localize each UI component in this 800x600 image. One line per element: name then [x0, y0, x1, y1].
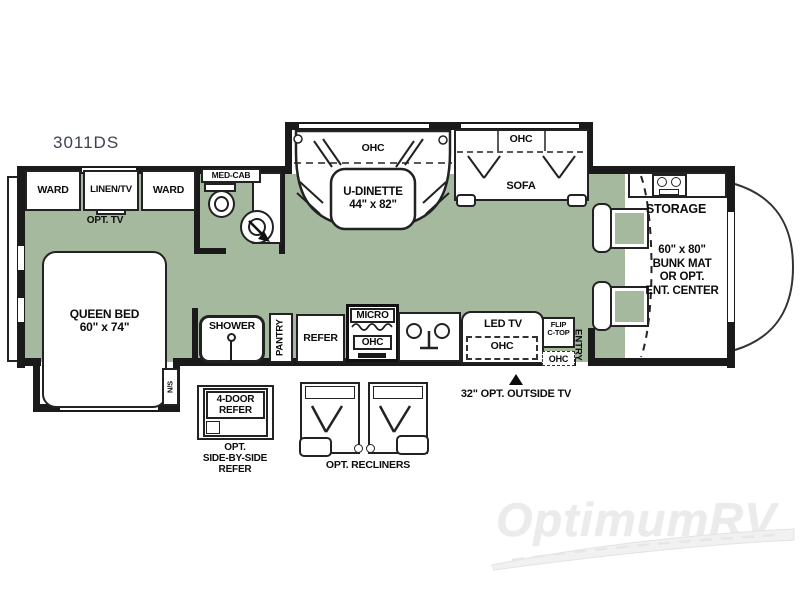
stove-vent-icon: [358, 353, 386, 358]
cupholder-right: [366, 444, 375, 453]
shower-divider: [230, 341, 232, 361]
bath-bottom-wall: [194, 248, 226, 254]
rear-window-2: [18, 298, 24, 322]
refrigerator: REFER: [296, 314, 345, 363]
passenger-seat-back: [592, 203, 612, 253]
recliner-right-footrest: [396, 435, 429, 455]
sofa-armrest-right: [567, 194, 587, 207]
sink-bowl-left: [406, 323, 422, 339]
linen-tv-cabinet: LINEN/TV: [83, 170, 139, 211]
kitchen-sink-counter: [398, 312, 461, 362]
medicine-cabinet: MED-CAB: [201, 168, 261, 183]
recliner-right-headrest: [373, 386, 423, 399]
cooktop-burner-left: [657, 177, 667, 187]
opt-tv-label: OPT. TV: [72, 215, 138, 226]
sofa-ohc-label: OHC: [496, 134, 546, 146]
passenger-seat-cushion: [615, 213, 644, 244]
slideout-left-wall: [285, 122, 292, 174]
entry-label: ENTRY: [572, 325, 583, 365]
microwave-label-chip: MICRO: [350, 308, 395, 323]
opt-refer-drawer: [206, 421, 220, 434]
opt-recliners-label: OPT. RECLINERS: [313, 460, 423, 472]
toilet-bowl: [214, 196, 229, 212]
outside-tv-arrow-icon: [509, 374, 523, 385]
sink-bowl-right: [434, 323, 450, 339]
rear-window: [18, 246, 24, 270]
recliner-left-headrest: [305, 386, 355, 399]
bunk-label: 60" x 80" BUNK MAT OR OPT. ENT. CENTER: [632, 244, 732, 298]
wardrobe-left: WARD: [25, 170, 81, 211]
pantry: PANTRY: [269, 313, 293, 363]
dinette-ohc-label: OHC: [347, 143, 399, 155]
queen-bed-label: QUEEN BED 60" x 74": [47, 308, 162, 335]
shower-left-wall: [192, 308, 198, 362]
led-tv-ohc-label: OHC: [466, 341, 538, 353]
driver-seat-back: [592, 281, 612, 331]
shower-label: SHOWER: [203, 321, 261, 333]
slideout-window-2: [461, 124, 579, 128]
model-number: 3011DS: [53, 133, 119, 153]
watermark-logo: OptimumRV: [496, 492, 777, 547]
opt-refer-label-box: 4-DOOR REFER: [206, 391, 265, 419]
windshield-curve: [735, 184, 793, 350]
led-tv-label: LED TV: [464, 318, 542, 330]
dinette-label: U-DINETTE 44" x 82": [331, 186, 415, 212]
recliner-left-footrest: [299, 437, 332, 457]
flip-ctop-label: FLIP C-TOP: [542, 321, 575, 338]
wardrobe-right: WARD: [141, 170, 196, 211]
cooktop-burner-right: [671, 177, 681, 187]
outside-tv-label: 32" OPT. OUTSIDE TV: [446, 388, 586, 400]
sofa-label: SOFA: [496, 180, 546, 192]
floorplan-canvas: 3011DS WARD LINEN/TV WARD OPT. TV QUEEN …: [0, 0, 800, 600]
bottom-wall-c: [594, 358, 735, 366]
slideout-window: [299, 124, 429, 128]
entry-side-wall: [588, 328, 595, 366]
cooktop-panel: [659, 189, 679, 195]
opt-refer-caption: OPT. SIDE-BY-SIDE REFER: [194, 442, 276, 476]
nightstand: N/S: [162, 368, 179, 406]
storage-label: STORAGE: [634, 202, 718, 216]
bath-sink-bowl: [248, 218, 266, 236]
sofa-armrest-left: [456, 194, 476, 207]
micro-ohc-chip: OHC: [353, 335, 392, 350]
cupholder-left: [354, 444, 363, 453]
entry-ohc-label: OHC: [542, 354, 575, 364]
